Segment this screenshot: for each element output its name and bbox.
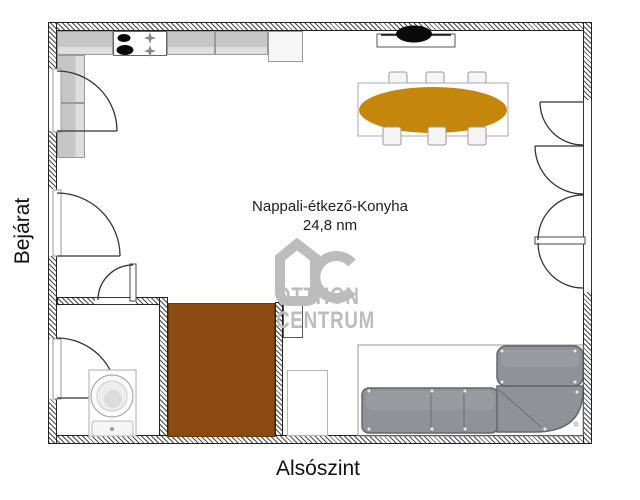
door-leaf-closed bbox=[53, 69, 61, 132]
door-arc bbox=[538, 243, 583, 288]
entrance-label: Bejárat bbox=[11, 176, 33, 286]
gas-burner-icon bbox=[144, 45, 156, 57]
door-leaf bbox=[535, 237, 585, 244]
chair bbox=[468, 127, 486, 145]
door-arc bbox=[57, 71, 117, 131]
chair bbox=[383, 127, 401, 145]
door-arc bbox=[98, 265, 133, 300]
burner-icon bbox=[117, 45, 134, 55]
sofa-cushion bbox=[501, 350, 579, 367]
door-leaf-closed bbox=[53, 190, 61, 256]
chair bbox=[428, 127, 446, 145]
room-area: 24,8 nm bbox=[230, 216, 430, 235]
room-label: Nappali-étkező-Konyha 24,8 nm bbox=[230, 197, 430, 235]
floor-plan: OTTHON CENTRUM bbox=[0, 0, 640, 500]
door-leaf-closed bbox=[53, 339, 61, 399]
floor-title: Alsószint bbox=[228, 457, 408, 481]
dining-table-top bbox=[359, 87, 507, 133]
entrance-door-arc bbox=[57, 193, 120, 256]
sofa-corner bbox=[497, 386, 583, 432]
door-leaf bbox=[130, 264, 136, 301]
room-name: Nappali-étkező-Konyha bbox=[230, 197, 430, 216]
tv-icon bbox=[396, 26, 432, 43]
washer-drum-core bbox=[104, 390, 122, 408]
door-arc bbox=[538, 195, 583, 240]
burner-icon bbox=[118, 34, 131, 42]
sofa-cushion bbox=[366, 391, 494, 410]
washer-knob bbox=[110, 427, 114, 431]
door-arc bbox=[540, 102, 583, 145]
gas-burner-icon bbox=[144, 32, 156, 44]
door-arc bbox=[535, 146, 583, 194]
plan-overlay bbox=[0, 0, 640, 500]
